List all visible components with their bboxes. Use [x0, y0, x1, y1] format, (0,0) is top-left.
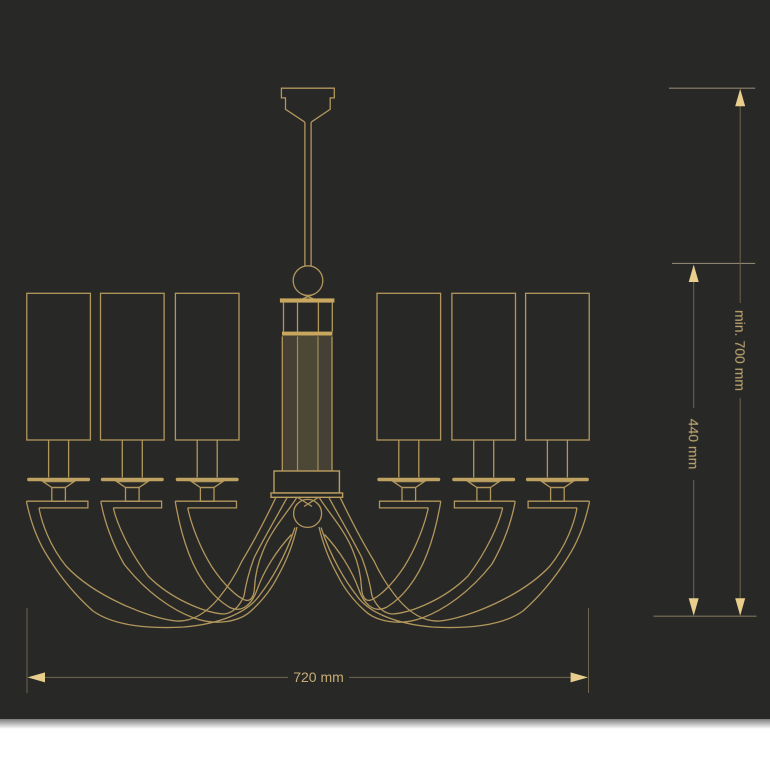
svg-text:720 mm: 720 mm	[293, 669, 344, 685]
svg-text:min. 700 mm: min. 700 mm	[732, 310, 748, 391]
svg-text:440 mm: 440 mm	[686, 419, 702, 470]
